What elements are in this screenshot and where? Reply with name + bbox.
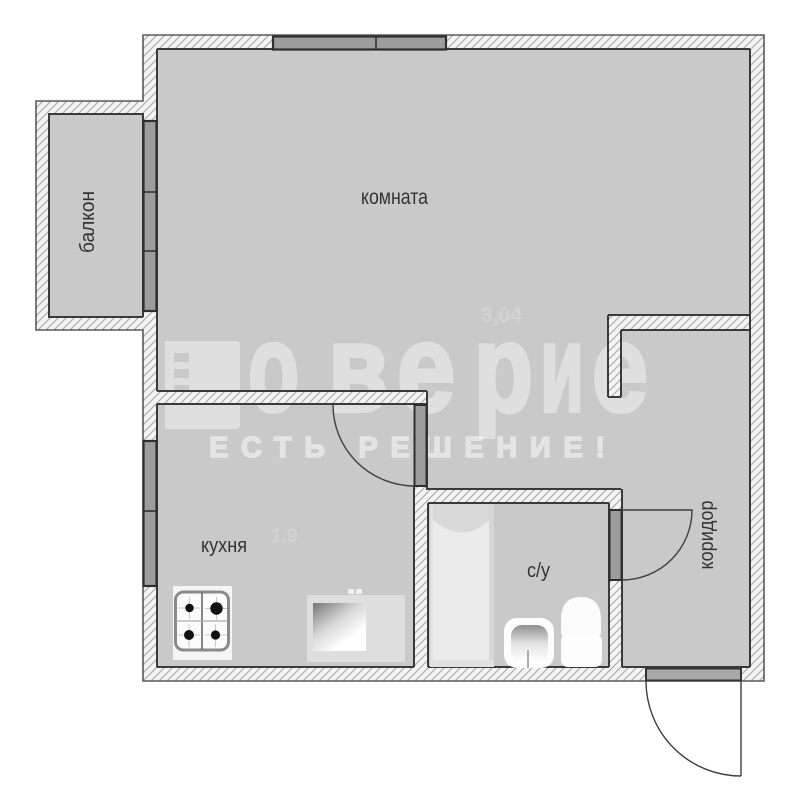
svg-text:с/у: с/у xyxy=(527,560,550,582)
svg-text:кухня: кухня xyxy=(201,535,247,557)
svg-text:о: о xyxy=(248,300,299,438)
svg-text:3,04: 3,04 xyxy=(481,304,522,327)
svg-text:и: и xyxy=(540,300,584,438)
svg-text:1,9: 1,9 xyxy=(271,526,297,547)
svg-text:коридор: коридор xyxy=(696,501,718,570)
svg-text:балкон: балкон xyxy=(77,191,99,253)
svg-text:в: в xyxy=(328,300,388,438)
svg-text:комната: комната xyxy=(361,186,428,209)
